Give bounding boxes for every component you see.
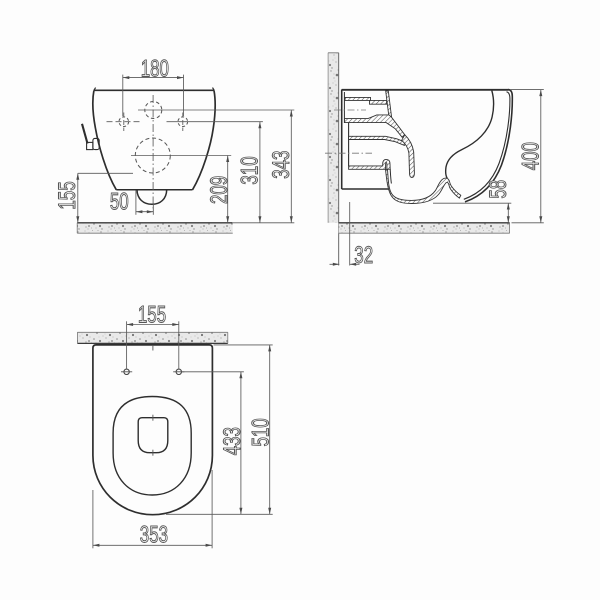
svg-text:180: 180 xyxy=(141,55,169,82)
svg-text:400: 400 xyxy=(518,142,545,170)
svg-text:343: 343 xyxy=(268,151,295,179)
svg-text:155: 155 xyxy=(138,301,166,328)
svg-text:58: 58 xyxy=(485,180,512,199)
svg-text:209: 209 xyxy=(206,176,233,204)
svg-text:32: 32 xyxy=(354,242,373,269)
svg-text:510: 510 xyxy=(248,418,275,446)
svg-text:353: 353 xyxy=(140,521,168,548)
svg-text:310: 310 xyxy=(236,156,263,184)
svg-text:50: 50 xyxy=(110,189,129,216)
svg-text:155: 155 xyxy=(54,181,81,209)
svg-text:433: 433 xyxy=(219,427,246,455)
